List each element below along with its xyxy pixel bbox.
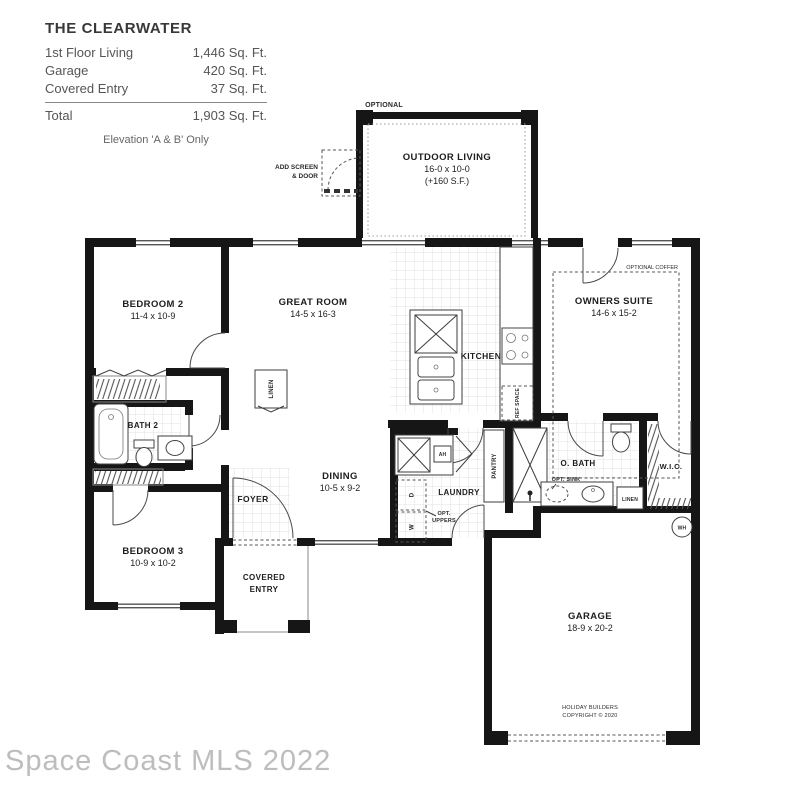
ref-space-label: REF SPACE <box>515 388 521 419</box>
linen-hall-label: LINEN <box>269 380 275 399</box>
window <box>253 240 298 245</box>
outdoor-living-dims: 16-0 x 10-0 <box>424 164 470 174</box>
vanity <box>541 482 613 506</box>
opt-uppers-label-2: UPPERS <box>432 518 456 524</box>
garage-door <box>508 735 666 741</box>
bedroom3-label: BEDROOM 3 <box>122 546 183 557</box>
door-bath2 <box>189 415 220 446</box>
linen-bath-label: LINEN <box>622 497 638 503</box>
washer-label: W <box>410 524 416 530</box>
owners-suite-dims: 14-6 x 15-2 <box>591 308 637 318</box>
floor-plan-drawing: OPTIONAL OUTDOOR LIVING 16-0 x 10-0 (+16… <box>0 0 800 800</box>
dryer-label: D <box>410 492 416 497</box>
air-handler-label: AH <box>439 452 447 458</box>
dining-dims: 10-5 x 9-2 <box>320 483 361 493</box>
laundry-label: LAUNDRY <box>438 488 480 497</box>
floor-plan-page: THE CLEARWATER 1st Floor Living 1,446 Sq… <box>0 0 800 800</box>
outdoor-living: OPTIONAL OUTDOOR LIVING 16-0 x 10-0 (+16… <box>275 102 538 238</box>
door-wic <box>658 421 691 454</box>
covered-entry-label-2: ENTRY <box>250 585 279 594</box>
sliding-door <box>362 240 425 245</box>
builder-copyright-2: COPYRIGHT © 2020 <box>562 712 617 719</box>
water-heater-label: WH <box>678 526 687 532</box>
dining-label: DINING <box>322 471 358 482</box>
door-bedroom2 <box>190 333 225 368</box>
window <box>315 540 378 545</box>
add-screen-label-1: ADD SCREEN <box>275 164 318 171</box>
outdoor-living-extra: (+160 S.F.) <box>425 176 469 186</box>
great-room-dims: 14-5 x 16-3 <box>290 309 336 319</box>
door-bedroom3 <box>113 490 148 525</box>
mls-watermark: Space Coast MLS 2022 <box>5 745 331 778</box>
kitchen-island <box>410 310 462 404</box>
garage-dims: 18-9 x 20-2 <box>567 623 613 633</box>
door-owners-suite <box>583 248 618 283</box>
covered-entry-label-1: COVERED <box>243 573 285 582</box>
window <box>136 240 170 245</box>
bath2-label: BATH 2 <box>128 421 159 430</box>
water-heater: WH <box>672 517 692 537</box>
range <box>502 328 533 364</box>
kitchen-label: KITCHEN <box>461 351 502 361</box>
obath-label: O. BATH <box>560 459 595 468</box>
great-room-label: GREAT ROOM <box>279 297 348 308</box>
bedroom3-dims: 10-9 x 10-2 <box>130 558 176 568</box>
foyer-label: FOYER <box>237 494 268 504</box>
garage-label: GARAGE <box>568 611 612 622</box>
outdoor-living-label: OUTDOOR LIVING <box>403 152 491 163</box>
opt-uppers-label-1: OPT. <box>437 511 450 517</box>
window <box>632 240 672 245</box>
builder-copyright-1: HOLIDAY BUILDERS <box>562 705 618 711</box>
toilet <box>611 424 631 452</box>
owners-suite-label: OWNERS SUITE <box>575 296 653 307</box>
add-screen-label-2: & DOOR <box>292 173 318 180</box>
wic-label: W.I.C. <box>660 462 683 471</box>
window <box>118 604 180 609</box>
bedroom2-label: BEDROOM 2 <box>122 299 183 310</box>
bedroom2-dims: 11-4 x 10-9 <box>131 311 176 321</box>
window <box>512 240 548 245</box>
pantry-label: PANTRY <box>492 453 498 478</box>
optional-label: OPTIONAL <box>365 102 403 109</box>
optional-coffer-label: OPTIONAL COFFER <box>626 265 678 271</box>
